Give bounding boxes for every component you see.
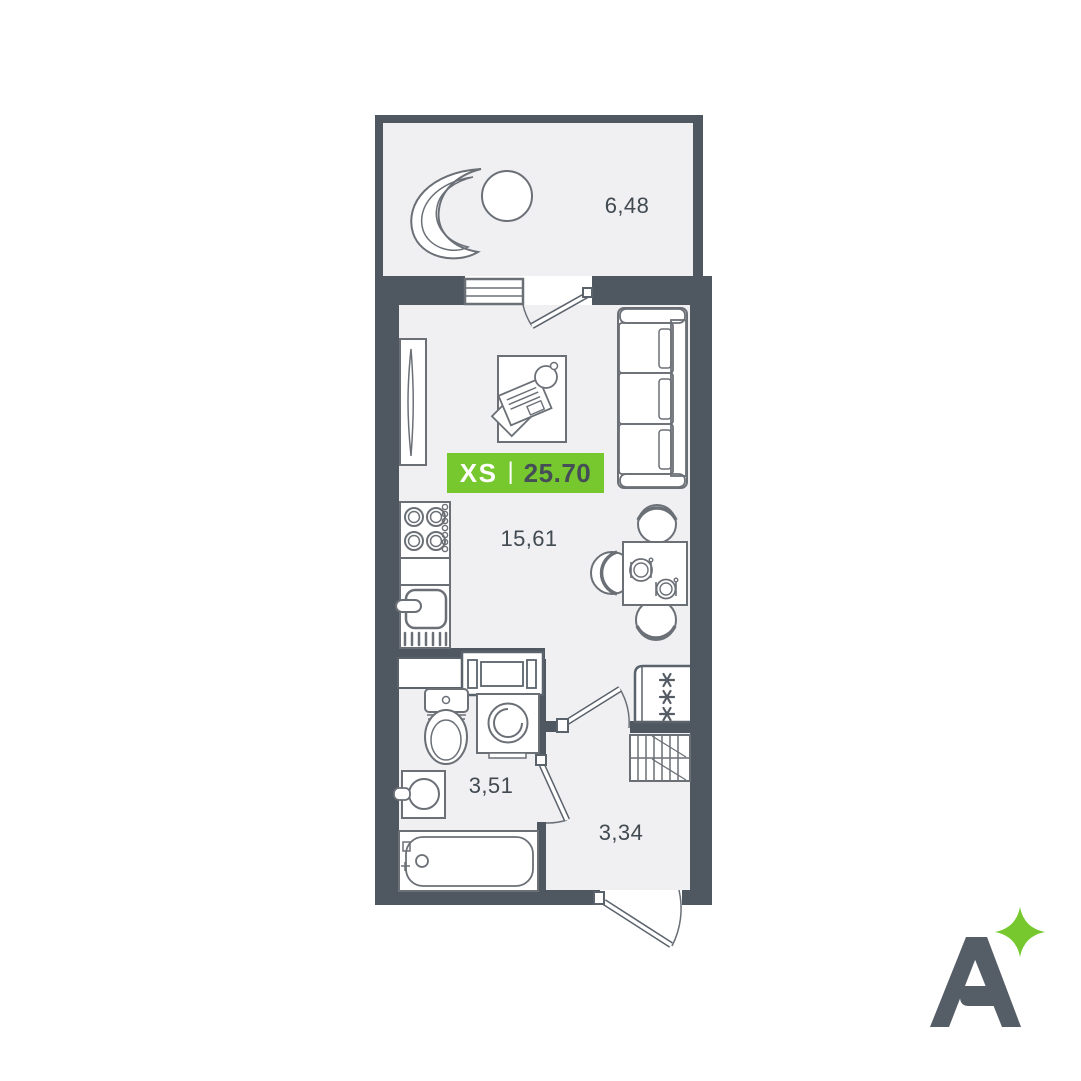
wall-segment: [375, 276, 399, 905]
wall-segment: [682, 890, 712, 905]
toilet: [425, 689, 468, 764]
bathroom-cabinet: [462, 652, 543, 695]
unit-total-area: 25.70: [524, 460, 592, 486]
sofa: [618, 308, 687, 488]
wall-segment: [693, 115, 703, 276]
drainer: [405, 633, 446, 645]
logo-letter-a: [930, 937, 1021, 1027]
developer-logo: [925, 903, 1055, 1043]
balcony-round-table: [482, 171, 532, 221]
door-hinge: [536, 755, 546, 765]
entrance-door: [594, 890, 681, 946]
wall-segment: [375, 115, 383, 276]
unit-size-badge: XS | 25.70: [447, 453, 604, 493]
bathroom-area-label: 3,51: [469, 773, 513, 799]
unit-size-label: XS: [460, 460, 498, 486]
wall-segment: [375, 890, 600, 905]
cup-handle: [551, 363, 558, 370]
stove: [400, 502, 450, 558]
faucet: [394, 788, 410, 800]
logo-graphic: [925, 903, 1055, 1038]
wall-segment: [375, 115, 703, 123]
living-area-label: 15,61: [500, 526, 557, 552]
balcony-area-label: 6,48: [605, 193, 649, 219]
dining-table: [623, 542, 687, 605]
door-hinge: [594, 892, 604, 904]
floorplan-canvas: 6,48 15,61 3,51 3,34 XS | 25.70: [0, 0, 1081, 1081]
bathroom-shelf: [398, 658, 465, 688]
shoe-rack: [630, 735, 690, 781]
wall-segment: [690, 276, 712, 890]
wardrobe: [400, 339, 426, 465]
bathroom-sink: [394, 771, 445, 818]
faucet: [396, 600, 421, 612]
sparkle-icon: [995, 907, 1045, 957]
washing-machine: [477, 694, 539, 758]
coffee-table: [492, 356, 566, 442]
window: [465, 279, 523, 304]
hallway-area-label: 3,34: [599, 820, 643, 846]
kitchen-counter: [400, 558, 450, 585]
bathtub: [399, 831, 538, 891]
hanger-icons: [660, 674, 674, 720]
badge-divider: |: [507, 460, 513, 484]
door-hinge: [583, 288, 592, 297]
hallway-wardrobe: [635, 666, 690, 722]
door-hinge: [557, 719, 568, 732]
kitchen-sink: [396, 585, 450, 648]
